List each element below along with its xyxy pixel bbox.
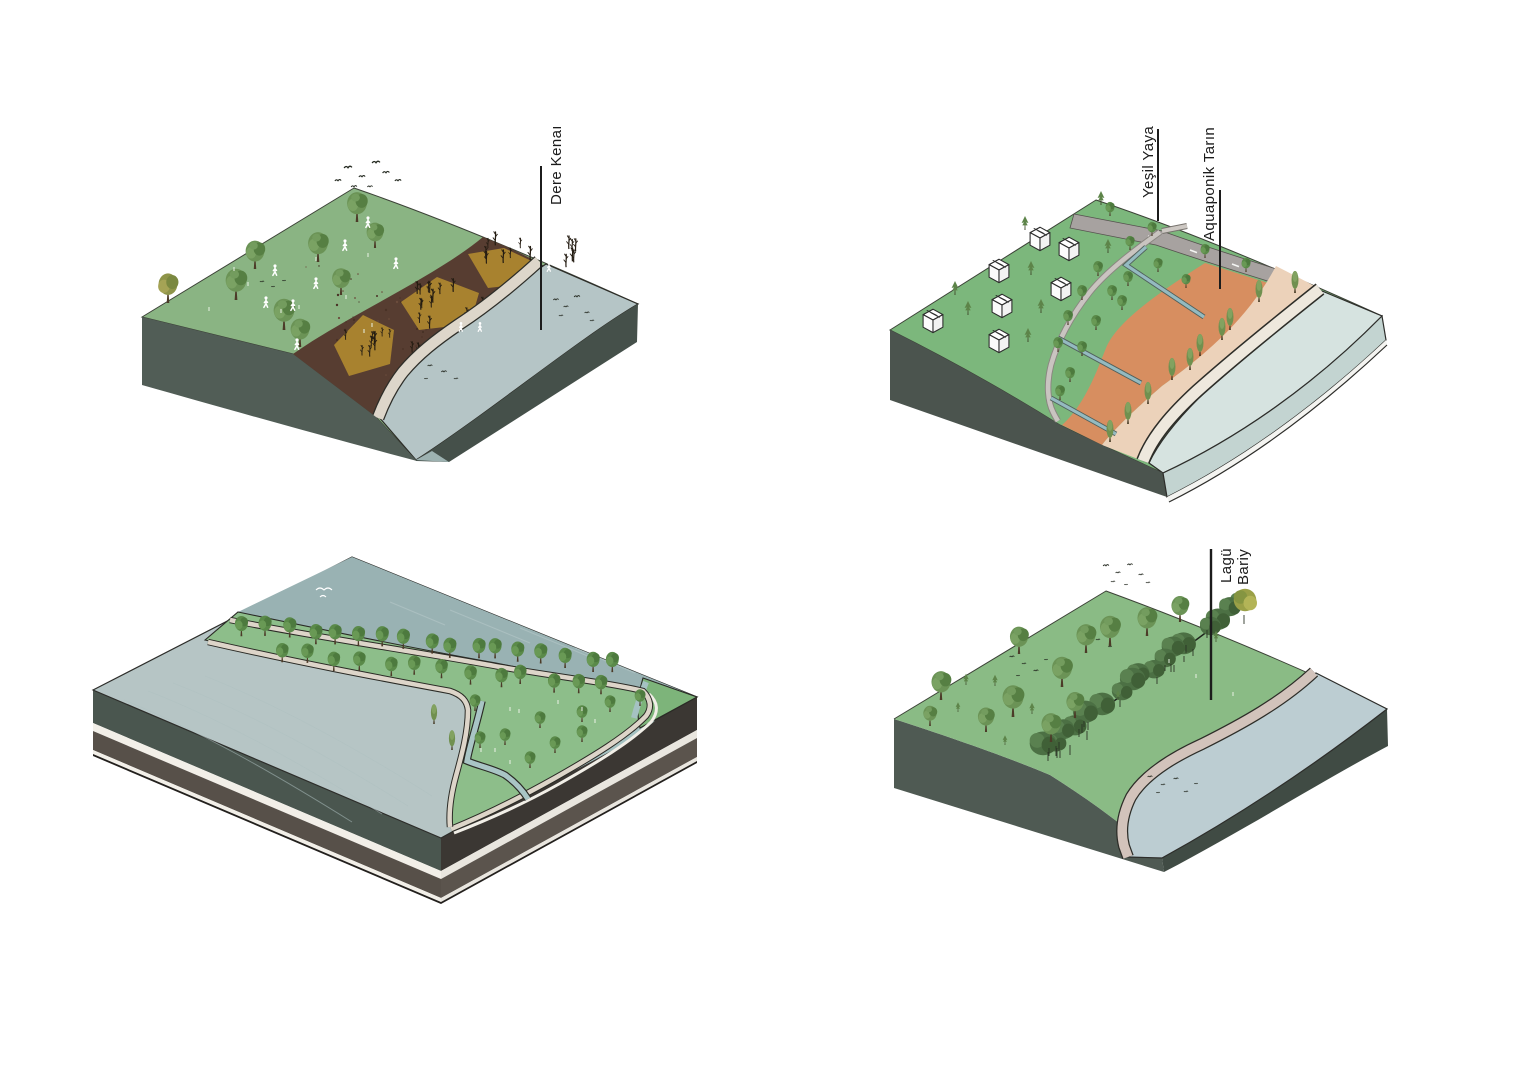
svg-text:Yeşil Yaya: Yeşil Yaya (1140, 126, 1157, 198)
svg-text:Bariy: Bariy (1235, 549, 1252, 585)
svg-text:Aquaponik Tarın: Aquaponik Tarın (1201, 127, 1218, 241)
svg-text:Dere Kenaı: Dere Kenaı (548, 125, 565, 205)
svg-text:Lagü: Lagü (1218, 548, 1235, 583)
